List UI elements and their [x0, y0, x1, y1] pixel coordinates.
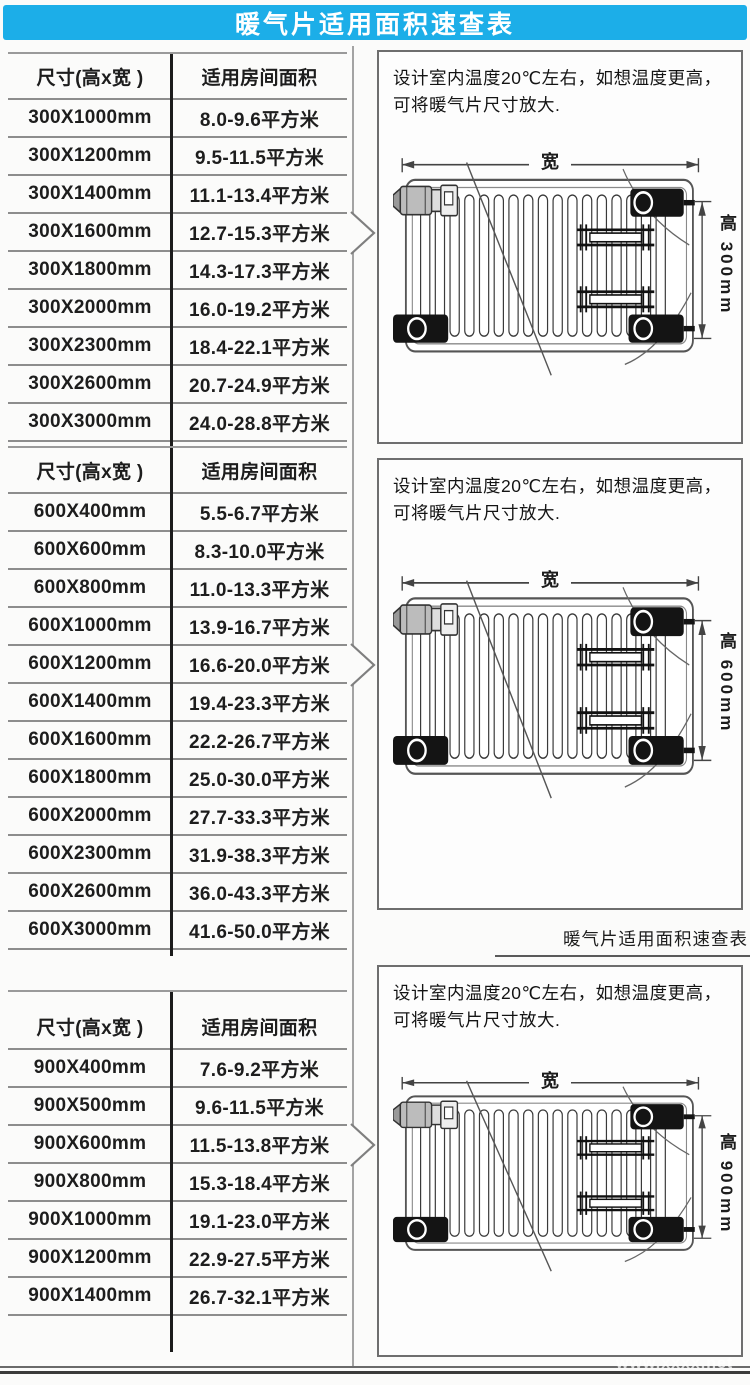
table-row: 900X500mm9.6-11.5平方米: [8, 1088, 347, 1126]
radiator-diagram-300: 宽 高 300mm: [393, 148, 715, 384]
table-row: 900X800mm15.3-18.4平方米: [8, 1164, 347, 1202]
table-header-row: 尺寸(高x宽 )适用房间面积: [8, 448, 347, 494]
size-cell: 600X1000mm: [8, 615, 172, 637]
area-cell: 8.0-9.6平方米: [172, 105, 347, 132]
area-cell: 24.0-28.8平方米: [172, 409, 347, 436]
area-cell: 11.0-13.3平方米: [172, 575, 347, 602]
table-row: 900X1000mm19.1-23.0平方米: [8, 1202, 347, 1240]
area-cell: 27.7-33.3平方米: [172, 803, 347, 830]
column-header-area: 适用房间面积: [172, 63, 347, 90]
height-dim-label: 高 600mm: [714, 632, 739, 733]
table-row: 600X1800mm25.0-30.0平方米: [8, 760, 347, 798]
size-cell: 900X800mm: [8, 1171, 172, 1193]
size-cell: 600X1200mm: [8, 653, 172, 675]
table-row: 300X1200mm9.5-11.5平方米: [8, 138, 347, 176]
size-cell: 600X3000mm: [8, 919, 172, 941]
area-cell: 36.0-43.3平方米: [172, 879, 347, 906]
area-cell: 11.1-13.4平方米: [172, 181, 347, 208]
size-cell: 900X1000mm: [8, 1209, 172, 1231]
radiator-diagram-600: 宽 高 600mm: [393, 566, 715, 807]
area-cell: 26.7-32.1平方米: [172, 1283, 347, 1310]
area-cell: 13.9-16.7平方米: [172, 613, 347, 640]
table-row: 300X2600mm20.7-24.9平方米: [8, 366, 347, 404]
area-cell: 20.7-24.9平方米: [172, 371, 347, 398]
diagram-panel-900: 设计室内温度20℃左右，如想温度更高，可将暖气片尺寸放大. 宽 高 900mm: [377, 965, 743, 1357]
width-dim-label: 宽: [529, 570, 571, 590]
size-table-600: 尺寸(高x宽 )适用房间面积600X400mm5.5-6.7平方米600X600…: [8, 446, 347, 950]
area-cell: 11.5-13.8平方米: [172, 1131, 347, 1158]
size-cell: 300X1200mm: [8, 145, 172, 167]
size-cell: 600X400mm: [8, 501, 172, 523]
table-column-divider: [170, 448, 173, 956]
size-cell: 300X1000mm: [8, 107, 172, 129]
area-cell: 9.6-11.5平方米: [172, 1093, 347, 1120]
area-cell: 22.2-26.7平方米: [172, 727, 347, 754]
area-cell: 25.0-30.0平方米: [172, 765, 347, 792]
area-cell: 14.3-17.3平方米: [172, 257, 347, 284]
area-cell: 22.9-27.5平方米: [172, 1245, 347, 1272]
area-cell: 5.5-6.7平方米: [172, 499, 347, 526]
table-row: 300X3000mm24.0-28.8平方米: [8, 404, 347, 442]
size-table-900: 尺寸(高x宽 )适用房间面积900X400mm7.6-9.2平方米900X500…: [8, 990, 347, 1316]
area-cell: 7.6-9.2平方米: [172, 1055, 347, 1082]
radiator-diagram-900: 宽 高 900mm: [393, 1067, 715, 1279]
size-cell: 600X800mm: [8, 577, 172, 599]
area-cell: 12.7-15.3平方米: [172, 219, 347, 246]
size-cell: 900X1200mm: [8, 1247, 172, 1269]
table-row: 600X400mm5.5-6.7平方米: [8, 494, 347, 532]
table-row: 300X1800mm14.3-17.3平方米: [8, 252, 347, 290]
width-dim-label: 宽: [529, 1071, 571, 1091]
table-row: 600X800mm11.0-13.3平方米: [8, 570, 347, 608]
height-dim-label: 高 900mm: [714, 1133, 739, 1234]
table-row: 300X2000mm16.0-19.2平方米: [8, 290, 347, 328]
page-title-bar: 暖气片适用面积速查表: [3, 5, 747, 40]
size-table-300: 尺寸(高x宽 )适用房间面积300X1000mm8.0-9.6平方米300X12…: [8, 52, 347, 442]
size-cell: 600X600mm: [8, 539, 172, 561]
column-header-size: 尺寸(高x宽 ): [8, 63, 172, 90]
design-note: 设计室内温度20℃左右，如想温度更高，可将暖气片尺寸放大.: [379, 460, 741, 526]
size-cell: 900X400mm: [8, 1057, 172, 1079]
table-row: 600X2600mm36.0-43.3平方米: [8, 874, 347, 912]
column-header-size: 尺寸(高x宽 ): [8, 1013, 172, 1040]
table-row: 600X1200mm16.6-20.0平方米: [8, 646, 347, 684]
area-cell: 8.3-10.0平方米: [172, 537, 347, 564]
size-cell: 300X1600mm: [8, 221, 172, 243]
size-cell: 300X1400mm: [8, 183, 172, 205]
size-cell: 900X500mm: [8, 1095, 172, 1117]
area-cell: 16.0-19.2平方米: [172, 295, 347, 322]
size-cell: 300X2000mm: [8, 297, 172, 319]
column-header-area: 适用房间面积: [172, 457, 347, 484]
area-cell: 31.9-38.3平方米: [172, 841, 347, 868]
width-dim-label: 宽: [529, 152, 571, 172]
size-cell: 600X2600mm: [8, 881, 172, 903]
page-title: 暖气片适用面积速查表: [235, 5, 515, 41]
area-cell: 15.3-18.4平方米: [172, 1169, 347, 1196]
height-dim-label: 高 300mm: [714, 214, 739, 315]
section-title-underline: [495, 955, 750, 957]
size-cell: 300X2600mm: [8, 373, 172, 395]
section-title: 暖气片适用面积速查表: [377, 926, 748, 951]
table-row: 600X3000mm41.6-50.0平方米: [8, 912, 347, 950]
diagram-panel-600: 设计室内温度20℃左右，如想温度更高，可将暖气片尺寸放大. 宽 高 600mm: [377, 458, 743, 910]
size-cell: 600X1600mm: [8, 729, 172, 751]
arrow-connector-icon: [347, 1122, 377, 1168]
table-column-divider: [170, 54, 173, 452]
column-header-area: 适用房间面积: [172, 1013, 347, 1040]
size-cell: 600X1800mm: [8, 767, 172, 789]
design-note: 设计室内温度20℃左右，如想温度更高，可将暖气片尺寸放大.: [379, 52, 741, 118]
design-note: 设计室内温度20℃左右，如想温度更高，可将暖气片尺寸放大.: [379, 967, 741, 1033]
table-header-row: 尺寸(高x宽 )适用房间面积: [8, 1004, 347, 1050]
diagram-panel-300: 设计室内温度20℃左右，如想温度更高，可将暖气片尺寸放大. 宽 高 300mm: [377, 50, 743, 444]
area-cell: 9.5-11.5平方米: [172, 143, 347, 170]
size-cell: 300X2300mm: [8, 335, 172, 357]
table-row: 900X1400mm26.7-32.1平方米: [8, 1278, 347, 1316]
table-column-divider: [170, 992, 173, 1352]
table-row: 600X2000mm27.7-33.3平方米: [8, 798, 347, 836]
size-cell: 600X1400mm: [8, 691, 172, 713]
size-cell: 300X1800mm: [8, 259, 172, 281]
watermark: www.xxxx.net: [616, 1355, 733, 1373]
table-row: 600X1600mm22.2-26.7平方米: [8, 722, 347, 760]
table-row: 600X600mm8.3-10.0平方米: [8, 532, 347, 570]
arrow-connector-icon: [347, 210, 377, 256]
size-cell: 300X3000mm: [8, 411, 172, 433]
table-row: 900X400mm7.6-9.2平方米: [8, 1050, 347, 1088]
size-cell: 600X2300mm: [8, 843, 172, 865]
column-header-size: 尺寸(高x宽 ): [8, 457, 172, 484]
table-row: 600X1400mm19.4-23.3平方米: [8, 684, 347, 722]
size-cell: 600X2000mm: [8, 805, 172, 827]
area-cell: 19.1-23.0平方米: [172, 1207, 347, 1234]
table-row: 300X1600mm12.7-15.3平方米: [8, 214, 347, 252]
size-cell: 900X1400mm: [8, 1285, 172, 1307]
table-row: 300X2300mm18.4-22.1平方米: [8, 328, 347, 366]
table-row: 300X1000mm8.0-9.6平方米: [8, 100, 347, 138]
table-row: 300X1400mm11.1-13.4平方米: [8, 176, 347, 214]
table-row: 600X1000mm13.9-16.7平方米: [8, 608, 347, 646]
table-row: 900X600mm11.5-13.8平方米: [8, 1126, 347, 1164]
area-cell: 16.6-20.0平方米: [172, 651, 347, 678]
area-cell: 41.6-50.0平方米: [172, 917, 347, 944]
arrow-connector-icon: [347, 642, 377, 688]
area-cell: 18.4-22.1平方米: [172, 333, 347, 360]
area-cell: 19.4-23.3平方米: [172, 689, 347, 716]
table-row: 900X1200mm22.9-27.5平方米: [8, 1240, 347, 1278]
table-row: 600X2300mm31.9-38.3平方米: [8, 836, 347, 874]
table-header-row: 尺寸(高x宽 )适用房间面积: [8, 54, 347, 100]
size-cell: 900X600mm: [8, 1133, 172, 1155]
